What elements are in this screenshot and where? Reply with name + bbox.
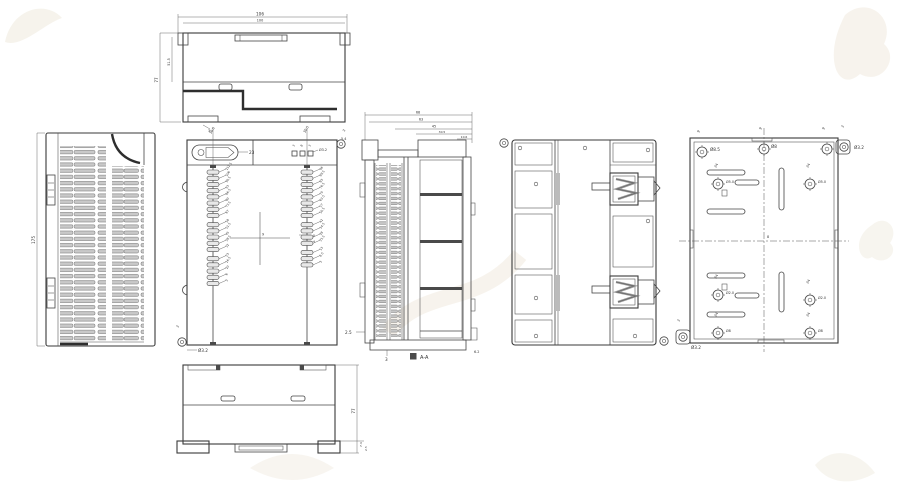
dim-label: Ø8 <box>726 328 731 333</box>
terminal-slot <box>207 241 219 245</box>
terminal-slot <box>301 250 313 254</box>
top-holes <box>292 150 318 156</box>
terminal-dim-label: 3 <box>225 278 229 282</box>
terminal-slot <box>207 195 219 199</box>
dim-label: 9 <box>696 130 701 134</box>
terminal-slot <box>301 229 313 233</box>
dim-label: 3 <box>175 325 180 329</box>
dim-label: 9 <box>821 127 826 131</box>
view-back <box>493 123 683 355</box>
terminal-slot <box>301 195 313 199</box>
boss-top-right <box>820 142 834 156</box>
dim-label: 10.6 <box>461 135 468 139</box>
terminal-slot <box>301 176 313 180</box>
boss-bottom-left <box>711 326 725 340</box>
dim-label: 3 <box>291 144 295 148</box>
vent-slats-right <box>112 166 144 342</box>
view-side: 175 <box>28 118 173 358</box>
dim-label: 100 <box>257 19 263 23</box>
terminal-slot <box>301 182 313 186</box>
bottom-view-outline <box>177 365 340 453</box>
dim-label: Ø3.2 <box>198 348 208 353</box>
terminal-slot <box>301 201 313 205</box>
dim-label: 30.5 <box>303 125 310 134</box>
section-slats-1 <box>376 165 386 337</box>
dim-label: 24 <box>805 279 811 285</box>
section-slats-2 <box>391 165 401 337</box>
dim-label: 175 <box>31 236 36 244</box>
mount-ear-bottom-left <box>679 333 687 341</box>
back-view-outline <box>500 139 668 345</box>
section-vents <box>420 160 462 338</box>
dim-label: 51.5 <box>167 58 171 66</box>
terminal-slot <box>207 235 219 239</box>
view-section: 68 63 45 30.5 10.6 5.4 2.5 3 <box>338 103 490 365</box>
dim-label: 3 <box>385 357 388 362</box>
terminal-slot <box>207 223 219 227</box>
terminal-slot <box>207 207 219 211</box>
dim-label: 7.4 <box>359 442 363 447</box>
base-view-dimensions: Ø8.5 Ø8 Ø5.0 Ø5.0 Ø2.0 Ø2.0 Ø8 Ø8 Ø3.2 Ø… <box>676 125 864 350</box>
section-caption: A-A <box>420 355 429 361</box>
edge-bump-top <box>183 182 188 192</box>
dim-label: 77 <box>351 408 356 414</box>
mount-ear-top-right <box>840 143 848 151</box>
terminal-slot <box>207 213 219 217</box>
base-slots <box>707 168 784 317</box>
dim-label: 8 <box>313 234 315 238</box>
terminal-slot <box>207 201 219 205</box>
terminal-slot <box>207 263 219 267</box>
dim-label: 3 <box>840 125 845 129</box>
boss-mid-left <box>711 177 725 191</box>
boss-bottom-right <box>803 326 817 340</box>
vent-slats-left <box>60 146 106 342</box>
dim-label: Ø3.2 <box>854 145 864 150</box>
side-view-dimensions: 175 <box>31 133 45 346</box>
terminal-slot <box>207 269 219 273</box>
dim-label: Ø8.5 <box>710 147 720 152</box>
terminal-slot <box>301 263 313 267</box>
dim-label: 8 <box>767 235 769 239</box>
terminal-slot <box>301 213 313 217</box>
top-view-outline <box>178 33 350 122</box>
view-bottom: 77 7.4 2.5 <box>166 356 381 466</box>
dim-label: 106 <box>256 12 264 17</box>
mount-ear-bottom-right <box>660 337 668 345</box>
boss-top-center <box>757 142 771 156</box>
dim-label: Ø2.0 <box>726 290 734 295</box>
dim-label: 77 <box>154 77 159 83</box>
dim-label: 3 <box>307 144 311 148</box>
terminal-slot <box>207 275 219 279</box>
dim-label: 63 <box>419 118 423 122</box>
terminal-column-left: 112.510699.59386.58073.5675851.54538.532… <box>207 162 233 286</box>
dim-label: 9 <box>262 233 264 237</box>
terminal-slot <box>301 223 313 227</box>
base-view-outline <box>676 128 850 352</box>
connector-cutout <box>192 145 238 160</box>
dim-label: 36.5 <box>209 126 216 135</box>
back-left-panels <box>515 143 560 342</box>
drawing-canvas: 106 100 77 51.5 3 175 <box>0 0 900 500</box>
dim-label: Ø8 <box>771 144 777 149</box>
dim-label: Ø8 <box>818 328 823 333</box>
dim-label: 5.4 <box>341 137 346 141</box>
terminal-dim-label: 3 <box>319 260 323 264</box>
terminal-slot <box>207 247 219 251</box>
bottom-view-dimensions: 77 7.4 2.5 <box>335 365 368 453</box>
terminal-slot <box>301 235 313 239</box>
front-view-outline: 112.510699.59386.58073.5675851.54538.532… <box>178 128 345 350</box>
terminal-slot <box>207 257 219 261</box>
terminal-slot <box>301 170 313 174</box>
dim-label: 6.2 <box>474 350 479 354</box>
dim-label: 2.5 <box>345 330 352 335</box>
dim-label: 23 <box>249 150 255 155</box>
terminal-dim-label: 67 <box>225 209 231 214</box>
edge-bump-bottom <box>183 285 188 295</box>
terminal-slot <box>301 189 313 193</box>
side-latch-top <box>47 175 55 205</box>
side-view-outline <box>46 133 155 346</box>
terminal-slot <box>301 257 313 261</box>
terminal-slot <box>207 182 219 186</box>
view-front: 112.510699.59386.58073.5675851.54538.532… <box>168 120 358 365</box>
din-clip-bottom <box>592 276 660 308</box>
terminal-slot <box>301 207 313 211</box>
section-dimensions-top: 68 63 45 30.5 10.6 5.4 <box>341 111 472 144</box>
boss-lower-right <box>803 293 817 307</box>
mount-ear-top-left <box>500 139 508 147</box>
dim-label: Ø3.2 <box>319 147 327 152</box>
dim-label: 30.5 <box>439 130 446 134</box>
terminal-slot <box>207 170 219 174</box>
dim-label: 4 <box>313 240 315 244</box>
dim-label: 45 <box>432 125 436 129</box>
boss-mid-right <box>803 177 817 191</box>
dim-label: 24 <box>713 163 719 169</box>
terminal-dim-label: 6 <box>225 272 229 276</box>
view-base: Ø8.5 Ø8 Ø5.0 Ø5.0 Ø2.0 Ø2.0 Ø8 Ø8 Ø3.2 Ø… <box>673 116 873 356</box>
dim-label: 2.5 <box>364 446 368 451</box>
section-body <box>360 140 477 350</box>
dim-label: 24 <box>805 312 811 318</box>
terminal-dim-label: 10 <box>225 264 231 269</box>
terminal-slot <box>207 229 219 233</box>
dim-label: 9 <box>758 127 763 131</box>
center-crosshair <box>230 212 311 265</box>
view-top: 106 100 77 51.5 3 <box>148 6 363 134</box>
dim-label: 3 <box>676 319 681 323</box>
terminal-dim-label: 6.5 <box>319 251 325 257</box>
terminal-slot <box>207 281 219 285</box>
dim-label: Ø5.0 <box>818 179 826 184</box>
din-clip-top <box>592 173 660 205</box>
dim-label: 68 <box>416 111 420 115</box>
terminal-dim-label: 112.5 <box>225 162 233 171</box>
section-symbol <box>410 353 417 360</box>
boss-top-left <box>695 145 709 159</box>
terminal-slot <box>301 241 313 245</box>
terminal-slot <box>207 189 219 193</box>
dim-label: 24 <box>805 163 811 169</box>
dim-label: 8 <box>299 144 303 148</box>
dim-label: Ø5.0 <box>726 179 734 184</box>
dim-label: Ø2.0 <box>818 295 826 300</box>
terminal-dim-label: 13 <box>319 246 325 251</box>
terminal-column-right: 9689.58376.57063.55750.54134.52821.5136.… <box>301 165 326 267</box>
dim-label: 24 <box>713 274 719 280</box>
side-latch-bottom <box>47 278 55 308</box>
terminal-slot <box>207 176 219 180</box>
mount-ear-bottom-left <box>178 338 186 346</box>
terminal-dim-label: 32 <box>225 243 231 248</box>
dim-label: Ø3.2 <box>691 345 701 350</box>
